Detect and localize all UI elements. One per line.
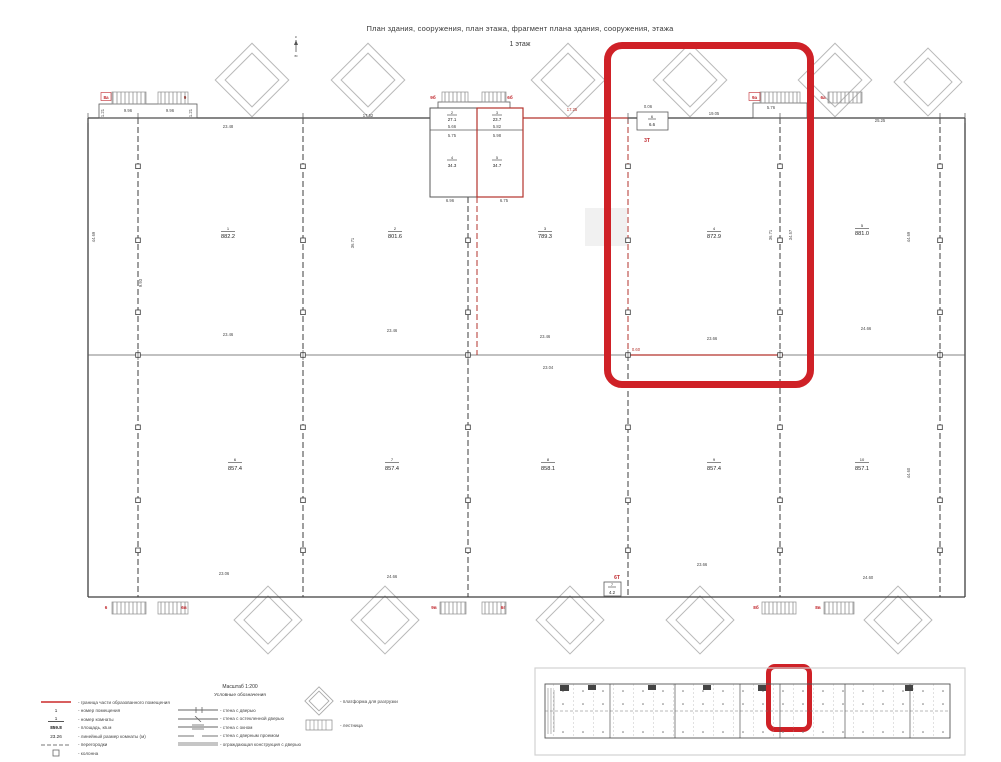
room-number: 1	[227, 226, 230, 231]
stairwell-top-middle	[438, 92, 510, 110]
room-number: 5	[496, 156, 498, 160]
tech-room-label: 3Т	[644, 138, 650, 144]
dim-label: 5.98	[493, 133, 502, 138]
dim-label: 23.66	[697, 562, 708, 567]
dim-label: 19.05	[709, 111, 720, 116]
room-number: 2	[394, 226, 397, 231]
loading-dock-diamonds-top	[215, 43, 962, 117]
dim-label: 44.69	[906, 231, 911, 242]
dim-label: 23.46	[540, 334, 551, 339]
dim-label: 36.71	[350, 237, 355, 248]
stair-label: 6г	[501, 605, 506, 610]
dim-label: 5.82	[493, 124, 502, 129]
room-area: 4.2	[609, 590, 616, 595]
legend-item-label: - граница части образованного помещения	[78, 700, 170, 705]
dim-label: 23.66	[707, 336, 718, 341]
wall-with-doorway-icon	[176, 733, 220, 739]
dim-label: 44.69	[91, 231, 96, 242]
legend-item-label: - линейный размер комнаты (м)	[78, 734, 146, 739]
legend-item-label: - стена с окном	[220, 725, 252, 730]
room-area: 858.1	[541, 466, 555, 472]
legend-item-label: - номер комнаты	[78, 717, 114, 722]
room-area: 34.3	[448, 163, 457, 168]
legend-item-label: - колонна	[78, 751, 98, 756]
room-number: 7	[611, 583, 613, 587]
dim-label: 6.75	[500, 198, 509, 203]
legend-item-label: - перегородки	[78, 742, 107, 747]
legend-item: - ограждающая конструкция с дверью	[176, 740, 376, 749]
room-number: 3	[496, 111, 498, 115]
dim-label: 23.46	[223, 332, 234, 337]
tech-room-label: 6Т	[614, 575, 620, 581]
partition-lines	[138, 118, 940, 597]
dim-label: 17.52	[363, 113, 374, 118]
small-room-boxes	[604, 112, 668, 596]
dim-label: 24.66	[387, 574, 398, 579]
room-number: 10	[860, 457, 865, 462]
dim-label: 5.76	[767, 105, 776, 110]
room-area: 27.1	[448, 117, 457, 122]
room-number: 7	[391, 457, 394, 462]
dim-label: 24.66	[861, 326, 872, 331]
dim-label: 9.96	[124, 108, 133, 113]
staircase-icon	[298, 718, 340, 732]
stair-label: 9а	[752, 95, 758, 100]
wall-with-door-icon	[176, 707, 220, 713]
legend-item-label: - стена с дверью	[220, 708, 256, 713]
legend-item-label: - номер помещения	[78, 708, 120, 713]
dim-label: 5.75	[448, 133, 457, 138]
room-area: 881.0	[855, 231, 869, 237]
stairwells-bottom	[112, 602, 854, 614]
room-area: 857.4	[385, 466, 399, 472]
dim-label: 6.96	[446, 198, 455, 203]
stairwell-top-left	[99, 92, 197, 118]
room-number: 6	[651, 115, 653, 119]
stair-label: 8в	[815, 605, 821, 610]
legend-headings: Масштаб 1:200 Условные обозначения	[180, 684, 300, 698]
overview-minimap	[533, 664, 968, 759]
room-number: 5	[861, 223, 864, 228]
columns	[136, 164, 943, 553]
loading-platform-icon	[298, 686, 340, 716]
legend-item-label: - стена с остекленной дверью	[220, 716, 284, 721]
dim-label: 9.93	[138, 278, 143, 287]
room-area: 857.1	[855, 466, 869, 472]
room-area: 872.9	[707, 234, 721, 240]
dim-label: 17.25	[567, 107, 578, 112]
legend-item-label: - стена с дверным проемом	[220, 733, 279, 738]
dim-label: 1.21	[100, 108, 105, 117]
outer-walls	[88, 118, 965, 597]
legend-item-label: - ограждающая конструкция с дверью	[220, 742, 301, 747]
dim-label: 5.66	[448, 124, 457, 129]
stair-label: 8а	[103, 95, 109, 100]
dim-label: 23.46	[387, 328, 398, 333]
room-number: 3	[544, 226, 547, 231]
room-area: 882.2	[221, 234, 235, 240]
dim-label: 25.25	[875, 118, 886, 123]
floor-plan: 1 882.2 2 801.6 3 789.3 4 872.9 5 881.0 …	[0, 0, 1001, 660]
dim-label: 34.57	[788, 229, 793, 240]
enclosing-structure-with-door-icon	[176, 741, 220, 747]
stair-label: 8б	[753, 604, 759, 610]
stair-label: 9б	[430, 94, 436, 100]
stair-label: 6а	[820, 95, 826, 100]
dim-label: 23.04	[543, 365, 554, 370]
room-number: 9	[713, 457, 716, 462]
dim-label: 44.60	[906, 467, 911, 478]
stair-label: 6	[105, 605, 108, 610]
dimension-ticks	[88, 113, 965, 360]
dim-label: 0.60	[632, 347, 641, 352]
room-area: 857.4	[228, 466, 242, 472]
faint-stamp	[585, 208, 627, 246]
fraction-numerator-symbol: 1	[34, 716, 78, 722]
linear-dimension-symbol: 23.26	[34, 734, 78, 739]
room-area: 23.7	[493, 117, 502, 122]
legend: Масштаб 1:200 Условные обозначения - гра…	[30, 680, 500, 756]
symbol-text: 1	[55, 716, 58, 721]
dim-label: 9.96	[166, 108, 175, 113]
partition-dashed-line-icon	[34, 743, 78, 747]
stair-label: 6в	[181, 605, 187, 610]
room-area: 857.4	[707, 466, 721, 472]
dim-label: 0.06	[644, 104, 653, 109]
room-area: 6.6	[649, 122, 656, 127]
legend-extra-symbols: - платформа для разгрузки - лестница	[298, 686, 398, 734]
room-number-symbol: 1	[34, 708, 78, 713]
room-number: 4	[451, 156, 453, 160]
column-square-icon	[34, 749, 78, 757]
stair-label: 6б	[507, 94, 513, 100]
room-number: 2	[451, 111, 453, 115]
room-number: 4	[713, 226, 716, 231]
plan-document-page: { "header": { "title": "План здания, соо…	[0, 0, 1001, 762]
loading-dock-diamonds-bottom	[234, 586, 932, 654]
legend-item-label: - площадь, кв.м	[78, 725, 111, 730]
room-area: 34.7	[493, 163, 502, 168]
dim-label: 36.71	[768, 229, 773, 240]
stair-label: 9в	[431, 605, 437, 610]
wall-with-glazed-door-icon	[176, 716, 220, 722]
room-area: 789.3	[538, 234, 552, 240]
room-area: 801.6	[388, 234, 402, 240]
area-symbol: 859.8	[34, 725, 78, 730]
legend-item-label: - платформа для разгрузки	[340, 699, 398, 704]
legend-item-label: - лестница	[340, 723, 363, 728]
room-number: 6	[234, 457, 237, 462]
legend-item: - колонна	[34, 749, 254, 758]
room-labels: 1 882.2 2 801.6 3 789.3 4 872.9 5 881.0 …	[221, 223, 869, 472]
dim-label: 23.06	[219, 571, 230, 576]
wall-with-window-icon	[176, 724, 220, 730]
dim-label: 1.21	[188, 108, 193, 117]
red-boundary-line-icon	[34, 700, 78, 704]
scale-label: Масштаб 1:200	[180, 684, 300, 690]
room-number: 8	[547, 457, 550, 462]
dim-label: 23.48	[223, 124, 234, 129]
fragment-block	[430, 108, 523, 355]
stair-label: 9	[184, 95, 187, 100]
dim-label: 24.60	[863, 575, 874, 580]
